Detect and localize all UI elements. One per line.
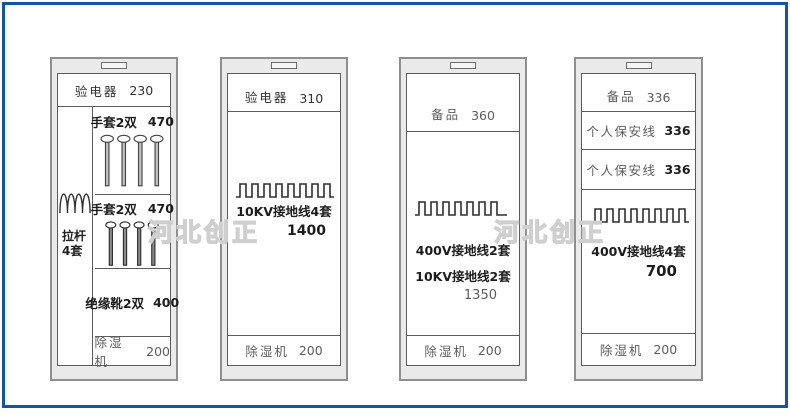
shelf-label: 除湿机 — [245, 341, 289, 360]
pull-rod-column: 拉杆 4套 — [58, 107, 93, 365]
shelf-spare-parts: 备品 336 — [582, 74, 695, 112]
pull-rod-coil-icon — [59, 185, 91, 215]
shelf-voltage-detector: 验电器 230 — [58, 74, 170, 107]
shelf-label: 验电器 — [75, 81, 119, 100]
pull-rod-label-line1: 拉杆 — [62, 229, 86, 244]
cabinet-handle — [626, 62, 652, 69]
tool-cabinet-diagram: 验电器 230 拉杆 4套 手套2双 470 — [0, 0, 790, 416]
shelf-personal-safety-line-2: 个人保安线 336 — [582, 150, 695, 190]
shelf-label: 除湿机 — [600, 340, 644, 359]
cabinet-handle — [101, 62, 127, 69]
compartment-dimension: 700 — [582, 262, 695, 280]
shelf-dimension: 230 — [129, 83, 153, 98]
shelf-label: 手套2双 — [91, 112, 137, 131]
shelf-dimension: 200 — [299, 343, 323, 358]
shelf-boots: 绝缘靴2双 400 — [95, 269, 171, 337]
shelf-dimension: 470 — [148, 114, 174, 129]
watermark-text: 河北创正 — [148, 213, 260, 249]
shelf-dimension: 200 — [653, 342, 677, 357]
cabinet-handle — [271, 62, 297, 69]
glove-pins-icon — [100, 134, 164, 188]
shelf-dehumidifier: 除湿机 200 — [407, 335, 519, 365]
shelf-label: 验电器 — [245, 87, 289, 106]
watermark-text: 河北创正 — [494, 213, 606, 249]
shelf-label: 除湿机 — [424, 341, 468, 360]
cabinet-handle — [450, 62, 476, 69]
shelf-dimension: 310 — [299, 91, 323, 106]
compartment-label: 10KV接地线2套 — [407, 266, 519, 285]
shelf-dimension: 336 — [664, 123, 690, 138]
shelf-dimension: 336 — [664, 162, 690, 177]
shelf-gloves-1: 手套2双 470 — [95, 107, 171, 195]
shelf-label: 绝缘靴2双 — [85, 293, 144, 312]
shelf-dimension: 360 — [471, 108, 495, 123]
grounding-wire-compartment: 400V接地线4套 700 — [582, 190, 695, 333]
shelf-voltage-detector: 验电器 310 — [228, 74, 340, 112]
shelf-dehumidifier: 除湿机 200 — [95, 337, 171, 365]
gloves-1-text: 手套2双 470 — [95, 112, 171, 131]
shelf-label: 手套2双 — [91, 199, 137, 218]
shelf-label: 备品 — [431, 104, 460, 123]
pull-rod-label: 拉杆 4套 — [62, 229, 86, 259]
shelf-personal-safety-line-1: 个人保安线 336 — [582, 112, 695, 150]
shelf-label: 个人保安线 — [586, 160, 656, 179]
grounding-wire-hooks-icon — [234, 182, 334, 198]
compartment-dimension: 1350 — [407, 288, 519, 303]
shelf-dehumidifier: 除湿机 200 — [582, 333, 695, 365]
shelf-dimension: 200 — [146, 344, 170, 359]
shelf-dimension: 400 — [153, 295, 179, 310]
pull-rod-label-line2: 4套 — [62, 244, 86, 259]
shelf-dimension: 200 — [478, 343, 502, 358]
shelf-dimension: 336 — [647, 90, 671, 105]
shelf-label: 除湿机 — [95, 332, 137, 370]
shelf-label: 个人保安线 — [586, 121, 656, 140]
shelf-label: 备品 — [607, 86, 636, 105]
shelf-dehumidifier: 除湿机 200 — [228, 335, 340, 365]
shelf-spare-parts: 备品 360 — [407, 74, 519, 132]
